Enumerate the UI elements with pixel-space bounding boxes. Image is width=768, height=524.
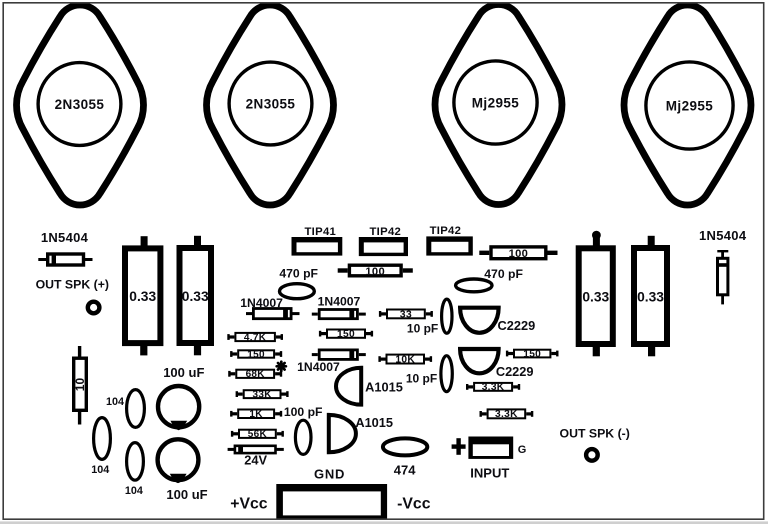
svg-text:104: 104 [106,396,124,408]
svg-text:1N5404: 1N5404 [699,228,747,243]
svg-text:G: G [518,444,527,456]
svg-text:C2229: C2229 [496,364,534,379]
svg-text:3.3K: 3.3K [495,409,518,420]
svg-text:A1015: A1015 [355,415,393,430]
svg-text:100 uF: 100 uF [163,365,204,380]
svg-text:474: 474 [394,463,416,478]
svg-text:470 pF: 470 pF [484,267,523,281]
svg-text:24V: 24V [244,453,267,468]
svg-text:68K: 68K [246,369,266,380]
svg-text:100 pF: 100 pF [284,405,323,419]
svg-text:0.33: 0.33 [129,289,156,304]
svg-text:100: 100 [365,266,385,278]
svg-text:TIP41: TIP41 [304,226,336,238]
svg-text:2N3055: 2N3055 [55,97,105,112]
svg-text:INPUT: INPUT [470,466,509,481]
svg-text:56K: 56K [248,429,268,440]
svg-text:33: 33 [400,308,412,320]
svg-text:Mj2955: Mj2955 [666,99,714,114]
svg-text:100: 100 [509,248,529,260]
svg-text:C2229: C2229 [498,318,536,333]
svg-text:TIP42: TIP42 [430,225,462,237]
svg-text:33K: 33K [252,390,272,401]
svg-text:0.33: 0.33 [637,289,664,304]
svg-text:0.33: 0.33 [182,289,209,304]
svg-text:1N4007: 1N4007 [297,360,340,374]
svg-text:+Vcc: +Vcc [230,496,268,513]
svg-text:1N4007: 1N4007 [318,294,361,308]
svg-text:100 uF: 100 uF [166,487,207,502]
svg-text:OUT SPK (-): OUT SPK (-) [560,427,630,441]
svg-text:104: 104 [91,464,109,476]
svg-text:150: 150 [337,329,355,340]
svg-text:150: 150 [523,349,541,360]
svg-text:1N5404: 1N5404 [41,230,89,245]
svg-text:10 pF: 10 pF [406,371,437,385]
svg-text:150: 150 [247,349,265,360]
svg-text:1K: 1K [249,409,263,420]
svg-text:3.3K: 3.3K [482,382,505,393]
svg-text:470 pF: 470 pF [279,267,318,281]
svg-text:0.33: 0.33 [582,290,609,305]
svg-text:TIP42: TIP42 [369,226,401,238]
svg-text:10 pF: 10 pF [407,321,438,335]
svg-text:10K: 10K [395,354,415,365]
svg-text:2N3055: 2N3055 [246,97,296,112]
svg-text:4.7K: 4.7K [244,332,267,343]
svg-text:OUT SPK (+): OUT SPK (+) [36,278,109,292]
svg-text:A1015: A1015 [365,379,403,394]
svg-text:-Vcc: -Vcc [397,496,431,513]
svg-text:GND: GND [314,467,345,482]
svg-text:10: 10 [73,378,87,392]
svg-text:Mj2955: Mj2955 [472,96,520,111]
svg-text:104: 104 [125,485,143,497]
